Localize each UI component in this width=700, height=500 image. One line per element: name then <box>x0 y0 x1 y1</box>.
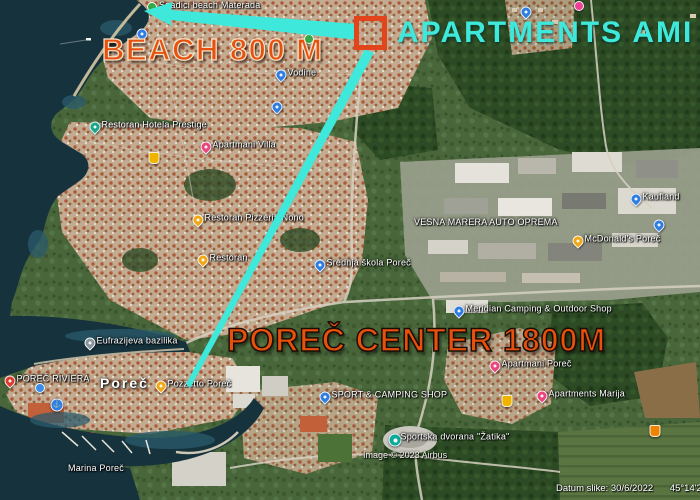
hotel-prestige-restaurant-marker: Restoran Hotela Prestige <box>90 122 101 133</box>
zatika-hall-marker-label: Sportska dvorana "Žatika" <box>401 432 510 442</box>
town-name-label: Poreč <box>100 375 149 391</box>
poi-marker-3 <box>654 220 665 231</box>
coordinates-label: 45°14'23.52" <box>670 483 700 494</box>
map-markers-layer: Spadici beach MateradaRestoran Hotela Pr… <box>0 0 700 500</box>
poi-marker-2 <box>272 102 283 113</box>
restaurant-pin-icon <box>153 378 169 394</box>
meridian-camping-marker-label: Meridian Camping & Outdoor Shop <box>466 304 612 314</box>
poi-dot-marker-2 <box>574 1 584 11</box>
store-pin-icon <box>628 191 644 207</box>
apartments-marker-1: Apartmani Poreč <box>490 361 501 372</box>
anchor-icon: ⚓ <box>51 399 64 412</box>
materada-beach-marker: Spadici beach Materada <box>147 2 157 12</box>
place-pin-icon <box>2 373 18 389</box>
school-marker: Srednja škola Poreč <box>315 260 326 271</box>
school-pin-icon <box>312 257 328 273</box>
kaufland-marker: Kaufland <box>631 194 642 205</box>
image-credit-label: Image © 2023 Airbus <box>363 450 447 460</box>
blue-dot-icon <box>35 383 45 393</box>
apartments-location-box <box>354 16 387 50</box>
pozzetto-marker: Pozzetto Poreč <box>156 381 167 392</box>
restaurant-marker-label: Restoran <box>210 253 248 263</box>
auto-oprema-label: VESNA MARERA AUTO OPREMA <box>414 217 558 227</box>
lodging-pin-icon <box>487 358 503 374</box>
poi-dot-marker-1 <box>35 383 45 393</box>
beach-distance-label: BEACH 800 M <box>102 34 324 65</box>
materada-beach-marker-label: Spadici beach Materada <box>159 0 260 10</box>
villa-apartments-marker-label: Apartmani Villa <box>213 140 276 150</box>
marina-porec-label-label: Marina Poreč <box>68 463 124 473</box>
pink-dot-icon <box>574 1 584 11</box>
image-date-label: Datum slike: 30/6/2022 <box>556 483 653 494</box>
apartments-marija-marker: Apartments Marija <box>537 391 548 402</box>
auto-oprema-label-label: VESNA MARERA AUTO OPREMA <box>414 217 558 227</box>
place-pin-icon <box>273 67 289 83</box>
vodine-marker-label: Vodine <box>288 68 317 78</box>
map-attribution: Datum slike: 30/6/2022 45°14'23.52" <box>556 483 700 494</box>
place-pin-icon <box>269 99 285 115</box>
pizzeria-nono-marker-label: Restoran Pizzeria Nono <box>205 213 304 223</box>
poi-shield-marker-2 <box>650 425 661 437</box>
school-marker-label: Srednja škola Poreč <box>327 258 411 268</box>
poi-shield-marker-1 <box>502 395 513 407</box>
basilica-marker-label: Eufrazijeva bazilika <box>97 336 178 346</box>
shield-icon <box>650 425 661 437</box>
porec-riviera-marker-label: POREČ RIVIERA <box>17 374 90 384</box>
lodging-pin-icon <box>534 388 550 404</box>
zatika-hall-marker: Sportska dvorana "Žatika" <box>389 434 402 447</box>
restaurant-marker: Restoran <box>198 255 209 266</box>
villa-apartments-marker: Apartmani Villa <box>201 142 212 153</box>
restaurant-pin-icon <box>87 119 103 135</box>
apartments-title-label: APARTMENTS AMI <box>397 18 693 48</box>
shield-icon <box>502 395 513 407</box>
center-distance-label: POREČ CENTER 1800M <box>227 324 606 356</box>
pozzetto-marker-label: Pozzetto Poreč <box>168 379 232 389</box>
map-screenshot: Spadici beach MateradaRestoran Hotela Pr… <box>0 0 700 500</box>
landmark-pin-icon <box>82 335 98 351</box>
restaurant-pin-icon <box>195 252 211 268</box>
sport-camping-shop-marker-label: SPORT & CAMPING SHOP <box>332 390 448 400</box>
restaurant-pin-icon <box>190 212 206 228</box>
marina-anchor-marker: ⚓ <box>51 399 64 412</box>
mcdonalds-marker-label: McDonald's Poreč <box>585 234 661 244</box>
store-pin-icon <box>451 303 467 319</box>
store-pin-icon <box>317 389 333 405</box>
vodine-marker: Vodine <box>276 70 287 81</box>
apartments-marija-marker-label: Apartments Marija <box>549 389 625 399</box>
restaurant-pin-icon <box>570 233 586 249</box>
poi-shield-marker-3 <box>149 152 160 164</box>
meridian-camping-marker: Meridian Camping & Outdoor Shop <box>454 306 465 317</box>
kaufland-marker-label: Kaufland <box>643 192 680 202</box>
mcdonalds-marker: McDonald's Poreč <box>573 236 584 247</box>
porec-riviera-marker: POREČ RIVIERA <box>5 376 16 387</box>
pizzeria-nono-marker: Restoran Pizzeria Nono <box>193 215 204 226</box>
basilica-marker: Eufrazijeva bazilika <box>85 338 96 349</box>
hotel-prestige-restaurant-marker-label: Restoran Hotela Prestige <box>102 120 207 130</box>
sport-camping-shop-marker: SPORT & CAMPING SHOP <box>320 392 331 403</box>
marina-porec-label: Marina Poreč <box>68 463 124 473</box>
place-pin-icon <box>651 217 667 233</box>
shield-icon <box>149 152 160 164</box>
green-dot-icon <box>147 2 157 12</box>
apartments-marker-1-label: Apartmani Poreč <box>502 359 572 369</box>
lodging-pin-icon <box>198 139 214 155</box>
